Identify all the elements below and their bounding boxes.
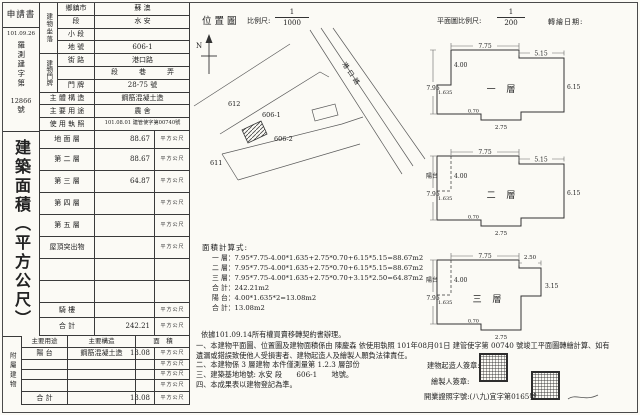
site-row-value: 蘇 澳 bbox=[95, 3, 190, 16]
dim-top: 7.75 bbox=[478, 149, 492, 156]
floor-row-value bbox=[95, 259, 155, 281]
floor-row-label: 第 二 層 bbox=[40, 149, 95, 171]
floor-row-value bbox=[95, 237, 155, 259]
balcony-dashed-line bbox=[437, 156, 451, 191]
license-number-label: 開業證照字號:(八九)宜字第0165號 bbox=[424, 392, 537, 402]
site-row-value: 港口路 bbox=[95, 54, 190, 67]
parcel-label-612: 612 bbox=[228, 100, 240, 108]
site-row-label: 小 段 bbox=[58, 29, 95, 42]
site-full-row-label: 主 體 構 造 bbox=[40, 93, 95, 106]
location-scale-fraction: 1 1000 bbox=[275, 8, 309, 27]
floor-row-label: 第 三 層 bbox=[40, 171, 95, 193]
receipt-no-prefix: 羅測建字第 bbox=[17, 41, 25, 96]
floor-label: 二 層 bbox=[487, 190, 520, 201]
annex-row-value bbox=[136, 380, 155, 392]
annex-row-unit: 平方公尺 bbox=[155, 370, 190, 380]
parcel-label-606-1: 606-1 bbox=[262, 111, 281, 119]
dim-step: 0.70 bbox=[468, 215, 479, 221]
dim-top: 7.75 bbox=[478, 253, 492, 260]
dim-notch: 1.635 bbox=[438, 196, 452, 202]
redraw-date-label: 轉繪日期: bbox=[548, 17, 583, 27]
floor-row-label bbox=[40, 281, 95, 303]
site-full-row-value: 101.08.01 建管使字第00740號 bbox=[95, 118, 190, 131]
annex-row-unit: 平方公尺 bbox=[155, 348, 190, 360]
receipt-no: 12866 bbox=[11, 98, 32, 105]
balcony-label: 陽台 bbox=[426, 276, 438, 284]
floor-row-value: 88.67 bbox=[95, 131, 155, 149]
plan-scale-fraction: 1 200 bbox=[497, 8, 525, 27]
annex-row-use bbox=[22, 370, 68, 380]
dim-inner: 4.00 bbox=[454, 277, 468, 284]
dim-step: 0.70 bbox=[468, 109, 479, 115]
plan-scale-label: 平面圖比例尺: bbox=[437, 16, 481, 26]
north-arrow-icon bbox=[201, 34, 217, 74]
parcel-label-606-2: 606-2 bbox=[274, 135, 293, 143]
dim-notch: 1.635 bbox=[438, 90, 452, 96]
note-3: 三、建築基地地號: 水安 段 606-1 地號。 bbox=[196, 370, 353, 380]
building-info-table: 申請書 101.09.26 羅測建字第 12866 號 建築面積（平方公尺） 附… bbox=[3, 3, 190, 405]
dim-step: 0.70 bbox=[468, 319, 479, 325]
road-edge bbox=[321, 28, 413, 166]
site-row-value: 段 巷 弄 bbox=[95, 67, 190, 80]
applicant-label: 申請書 bbox=[3, 3, 40, 28]
site-row-value: 28-75 號 bbox=[95, 80, 190, 93]
site-row-label: 地 號 bbox=[58, 41, 95, 54]
site-row-label: 段 bbox=[58, 16, 95, 29]
floor-row-value bbox=[95, 303, 155, 318]
location-map: N 612 606-1 606-2 611 港口路 bbox=[192, 26, 432, 244]
pen-mark bbox=[567, 392, 601, 402]
floor-row-value bbox=[95, 193, 155, 215]
survey-document-page: 申請書 101.09.26 羅測建字第 12866 號 建築面積（平方公尺） 附… bbox=[0, 0, 640, 415]
floor-row-label: 屋頂突出物 bbox=[40, 237, 95, 259]
annex-row-use: 陽 台 bbox=[22, 348, 68, 360]
parcel-boundary bbox=[194, 44, 290, 106]
location-scale-label: 比例尺: bbox=[247, 16, 270, 26]
road-label: 港口路 bbox=[340, 60, 363, 89]
dim-tab: 2.75 bbox=[495, 231, 508, 237]
floor-label: 一 層 bbox=[487, 84, 520, 95]
location-map-title: 位置圖 bbox=[202, 13, 240, 27]
floor-row-unit bbox=[155, 281, 190, 303]
basis-note: 依據101.09.14所有權買賣移轉契約書辦理。 bbox=[201, 330, 345, 340]
parcel-label-611: 611 bbox=[210, 159, 222, 167]
note-1: 一、本建物平面圖、位置圖及建物面積係由 陳慶森 依使用執照 101年08月01日… bbox=[196, 341, 616, 360]
floor-row-value: 88.67 bbox=[95, 149, 155, 171]
floor-row-label: 第 五 層 bbox=[40, 215, 95, 237]
dim-top: 7.75 bbox=[478, 43, 492, 50]
site-full-row-value: 鋼筋混凝土造 bbox=[95, 93, 190, 106]
location-scale-numerator: 1 bbox=[275, 8, 309, 18]
site-full-row-value: 農 舍 bbox=[95, 105, 190, 118]
floor-row-value bbox=[95, 281, 155, 303]
subject-building-footprint bbox=[242, 121, 267, 143]
annex-row-value bbox=[136, 370, 155, 380]
floor-row-value: 64.87 bbox=[95, 171, 155, 193]
floor-plan-2f: 7.75 5.15 6.15 7.95 陽台 4.00 1.635 0.70 2… bbox=[417, 146, 629, 246]
floor-row-unit: 平方公尺 bbox=[155, 171, 190, 193]
builder-seal-stamp bbox=[479, 353, 508, 382]
annex-row-structure bbox=[68, 380, 136, 392]
balcony-dashed-line bbox=[437, 260, 451, 295]
annex-row-unit: 平方公尺 bbox=[155, 380, 190, 392]
annex-header-area: 面 積 bbox=[136, 336, 190, 348]
receipt-no-suffix: 號 bbox=[17, 106, 25, 114]
road-edge bbox=[310, 30, 402, 174]
parcel-boundary bbox=[238, 144, 360, 180]
annex-row-structure bbox=[68, 392, 136, 405]
drafter-signature-label: 繪製人簽章: bbox=[431, 377, 469, 387]
dim-inner: 4.00 bbox=[454, 173, 468, 180]
dim-ext-top: 5.15 bbox=[534, 51, 548, 58]
annex-row-use bbox=[22, 380, 68, 392]
calc-line: 合 計：13.08m2 bbox=[212, 302, 265, 312]
floor-plan-3f: 7.75 2.50 3.15 7.95 陽台 4.00 1.635 0.70 2… bbox=[417, 250, 629, 350]
annex-row-unit: 平方公尺 bbox=[155, 360, 190, 370]
annex-row-structure bbox=[68, 360, 136, 370]
annex-row-value bbox=[136, 360, 155, 370]
floor-row-value: 242.21 bbox=[95, 318, 155, 336]
group-label-location: 建物坐落 bbox=[40, 3, 58, 54]
site-row-label: 門 牌 bbox=[58, 80, 95, 93]
dim-ext-side: 3.15 bbox=[545, 283, 559, 290]
dim-inner: 4.00 bbox=[454, 62, 468, 69]
calc-line: 二 層：7.95*7.75-4.00*1.635+2.75*0.70+6.15*… bbox=[212, 262, 423, 272]
annex-row-use bbox=[22, 360, 68, 370]
floor-row-label bbox=[40, 259, 95, 281]
annex-side-label: 附屬建物 bbox=[3, 336, 22, 405]
dim-ext-top: 2.50 bbox=[524, 255, 537, 261]
calc-line: 一 層：7.95*7.75-4.00*1.635+2.75*0.70+6.15*… bbox=[212, 252, 423, 262]
parcel-boundary bbox=[222, 154, 238, 180]
group-label-address: 建物門牌 bbox=[40, 54, 58, 92]
floor-row-unit bbox=[155, 259, 190, 281]
annex-row-value: 13.08 bbox=[136, 392, 155, 405]
receipt-stamp: 101.09.26 羅測建字第 12866 號 bbox=[3, 28, 40, 131]
site-row-value: 606-1 bbox=[95, 41, 190, 54]
plan-scale-denominator: 200 bbox=[497, 18, 525, 27]
annex-header-use: 主要用途 bbox=[22, 336, 68, 348]
site-row-value: 水 安 bbox=[95, 16, 190, 29]
dim-ext-top: 5.15 bbox=[534, 157, 548, 164]
note-2: 二、本建物係 3 層建物 本件僅測量第 1.2.3 層部份 bbox=[196, 360, 360, 370]
north-label: N bbox=[196, 42, 202, 50]
floor-plan-1f: 7.75 5.15 6.15 7.95 4.00 1.635 0.70 2.75… bbox=[417, 40, 629, 140]
dimension-lines bbox=[430, 253, 541, 324]
annex-header-structure: 主要構造 bbox=[68, 336, 136, 348]
annex-row-unit: 平方公尺 bbox=[155, 392, 190, 405]
annex-row-structure: 鋼筋混凝土造 bbox=[68, 348, 136, 360]
floor-row-unit: 平方公尺 bbox=[155, 215, 190, 237]
floor-row-unit: 平方公尺 bbox=[155, 303, 190, 318]
floor-row-label: 第 四 層 bbox=[40, 193, 95, 215]
annex-row-structure bbox=[68, 370, 136, 380]
area-section-title: 建築面積（平方公尺） bbox=[3, 131, 40, 336]
floor-row-label: 合 計 bbox=[40, 318, 95, 336]
site-row-label: 鄉鎮市 bbox=[58, 3, 95, 16]
parcel-tab bbox=[312, 104, 338, 121]
builder-signature-label: 建物起造人簽章: bbox=[427, 361, 480, 371]
balcony-label: 陽台 bbox=[426, 172, 438, 180]
plan-scale-numerator: 1 bbox=[497, 8, 525, 18]
floor-row-unit: 平方公尺 bbox=[155, 149, 190, 171]
site-row-value bbox=[95, 29, 190, 42]
floor-row-label: 地 面 層 bbox=[40, 131, 95, 149]
floor-row-unit: 平方公尺 bbox=[155, 237, 190, 259]
dim-tab: 2.75 bbox=[495, 125, 508, 131]
road-edge bbox=[333, 28, 425, 159]
floor-row-unit: 平方公尺 bbox=[155, 131, 190, 149]
annex-row-value: 13.08 bbox=[136, 348, 155, 360]
floor-row-unit: 平方公尺 bbox=[155, 318, 190, 336]
floor-label: 三 層 bbox=[473, 294, 506, 305]
calc-line: 合 計：242.21m2 bbox=[212, 282, 269, 292]
dim-notch: 1.635 bbox=[438, 300, 452, 306]
dim-ext-side: 6.15 bbox=[567, 84, 581, 91]
floor-row-unit: 平方公尺 bbox=[155, 193, 190, 215]
site-row-label: 街 路 bbox=[58, 54, 95, 67]
annex-row-use: 合 計 bbox=[22, 392, 68, 405]
site-full-row-label: 使 用 執 照 bbox=[40, 118, 95, 131]
note-4: 四、本成果表以建物登記為準。 bbox=[196, 380, 297, 390]
floor-row-value bbox=[95, 215, 155, 237]
dim-ext-side: 6.15 bbox=[567, 190, 581, 197]
calc-line: 陽 台：4.00*1.635*2=13.08m2 bbox=[212, 292, 316, 302]
calc-line: 三 層：7.95*7.75-4.00*1.635+2.75*0.70+3.15*… bbox=[212, 272, 423, 282]
site-full-row-label: 主 要 用 途 bbox=[40, 105, 95, 118]
floor-row-label: 騎 樓 bbox=[40, 303, 95, 318]
site-row-label bbox=[58, 67, 95, 80]
receipt-date: 101.09.26 bbox=[7, 32, 35, 38]
